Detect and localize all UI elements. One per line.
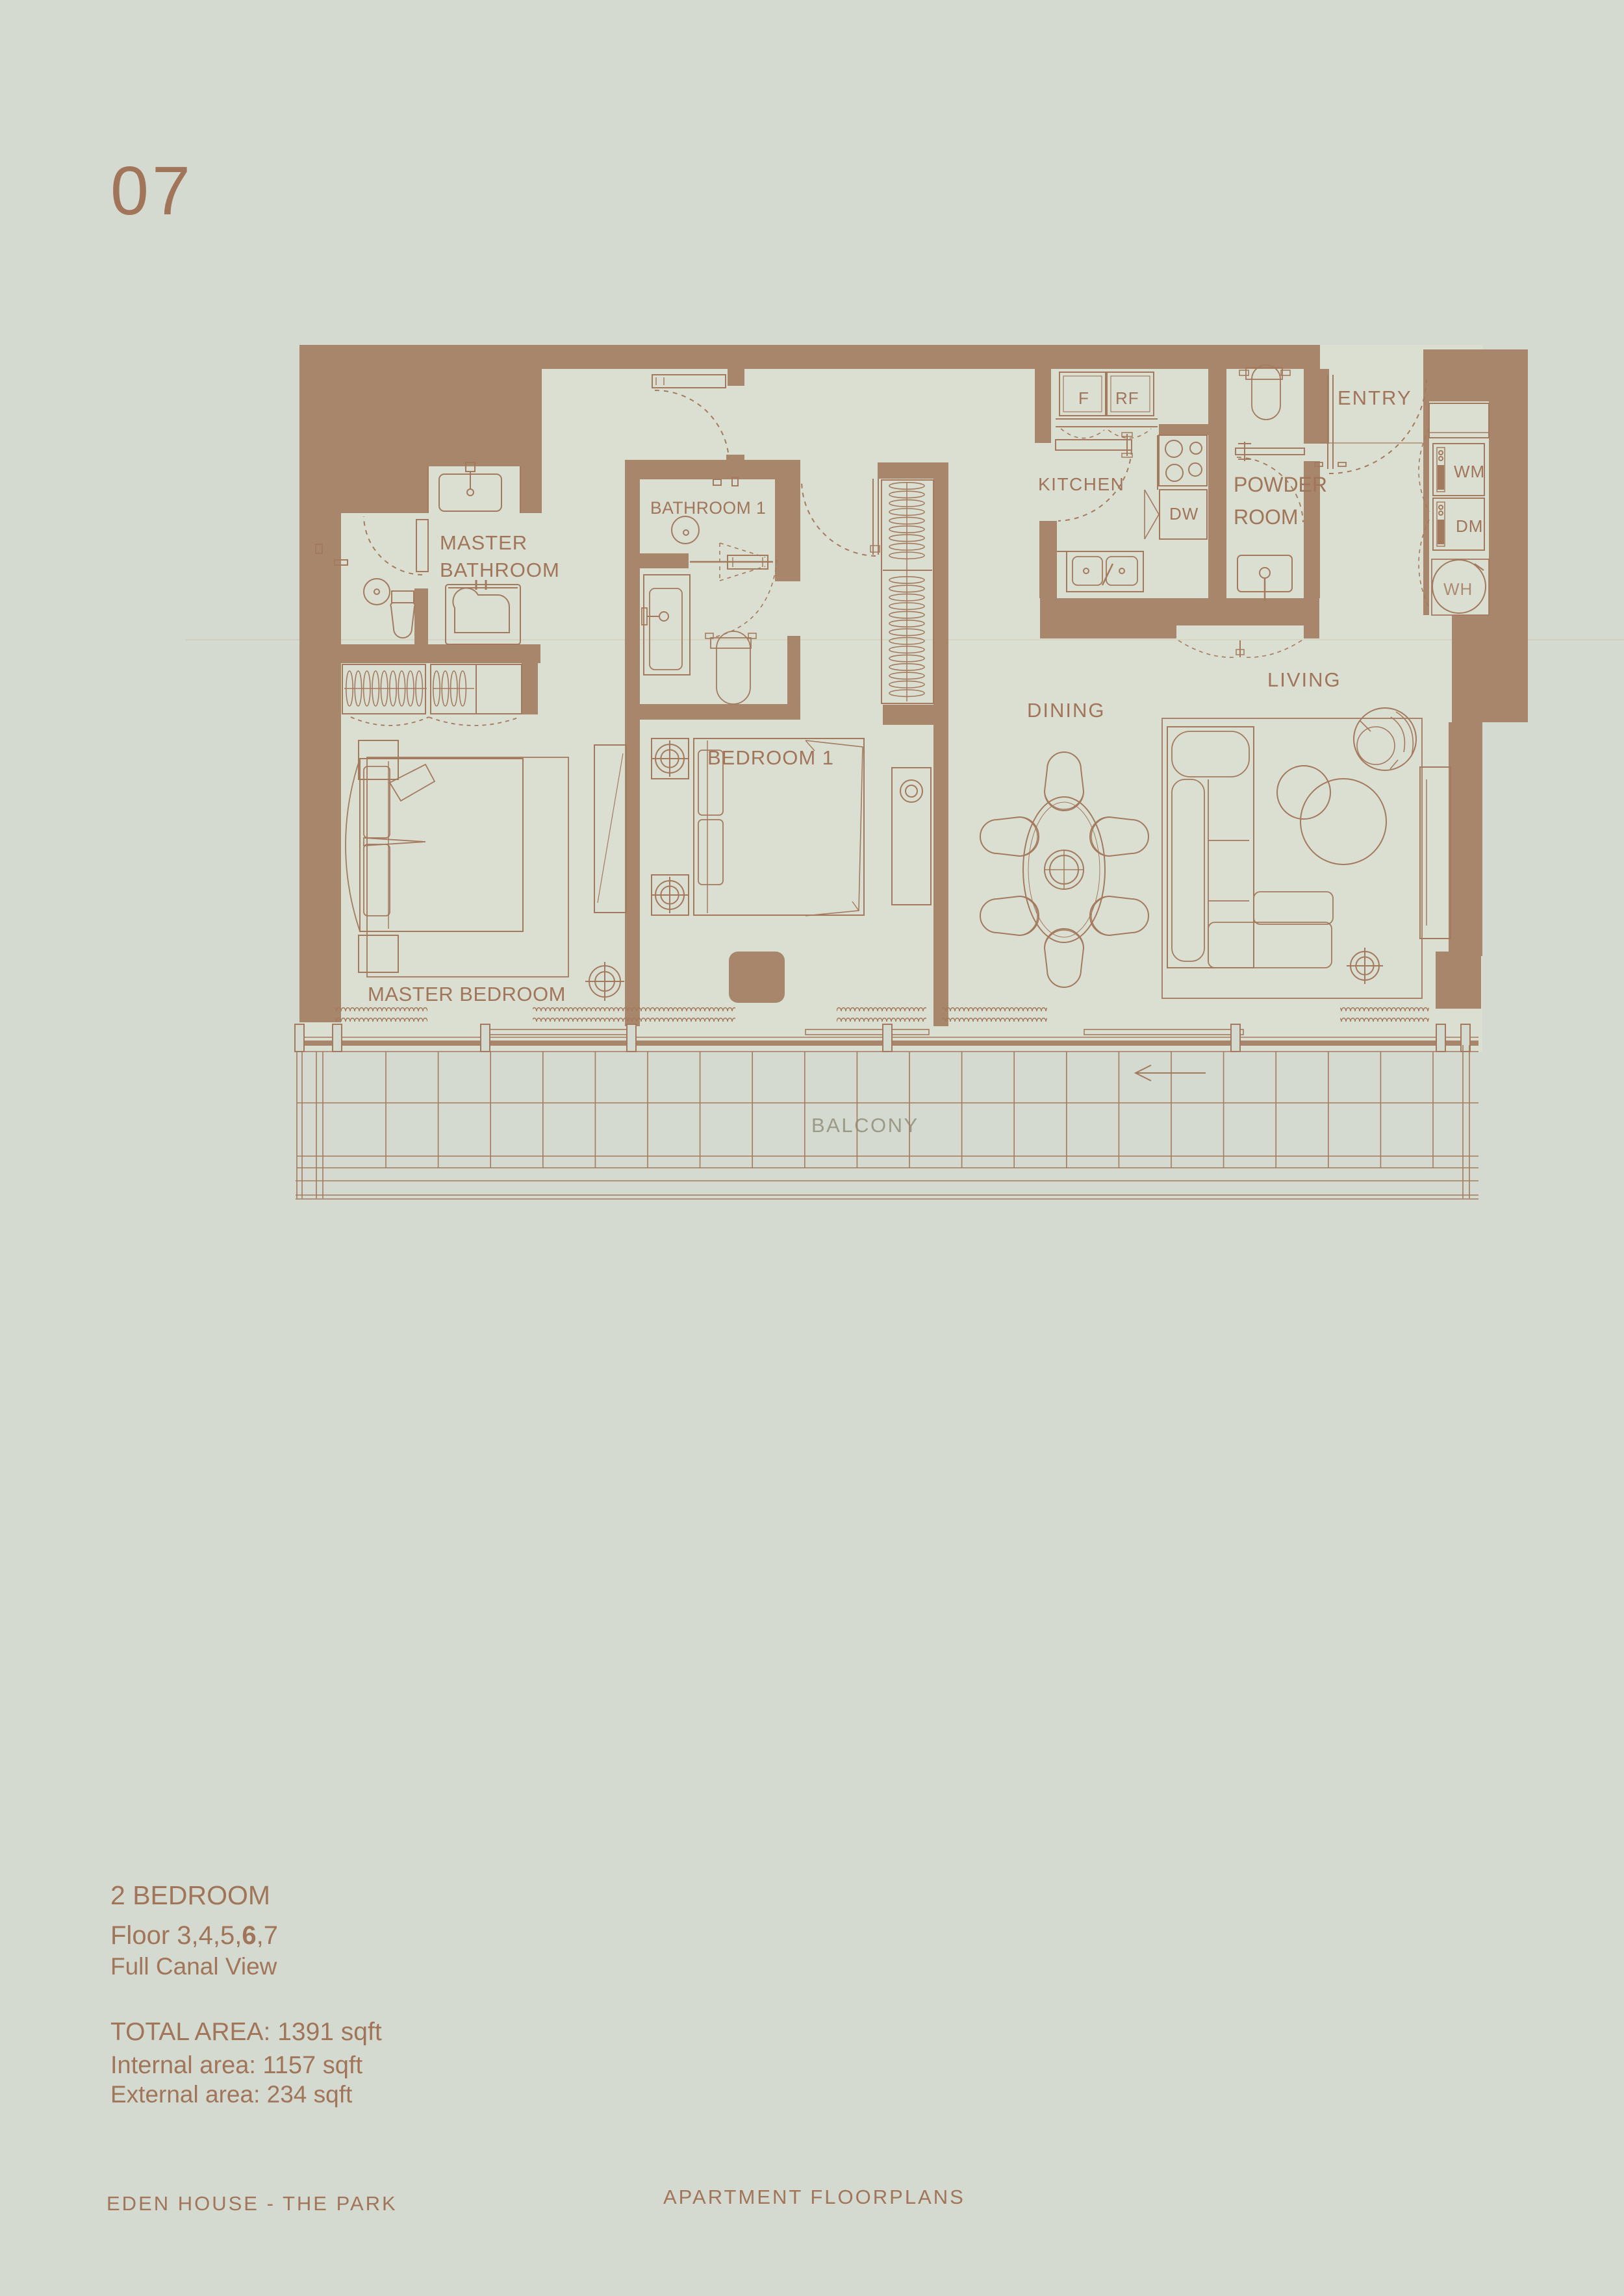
- svg-text:External area: 234 sqft: External area: 234 sqft: [110, 2081, 353, 2108]
- svg-text:BATHROOM 1: BATHROOM 1: [650, 498, 766, 518]
- svg-text:TOTAL AREA: 1391 sqft: TOTAL AREA: 1391 sqft: [110, 2018, 382, 2046]
- svg-text:MASTER BEDROOM: MASTER BEDROOM: [368, 983, 566, 1005]
- svg-text:LIVING: LIVING: [1267, 668, 1341, 691]
- svg-text:2 BEDROOM: 2 BEDROOM: [110, 1880, 270, 1910]
- svg-text:DINING: DINING: [1027, 699, 1106, 722]
- svg-text:BATHROOM: BATHROOM: [440, 559, 560, 581]
- svg-text:Floor 3,4,5,6,7: Floor 3,4,5,6,7: [110, 1921, 278, 1950]
- svg-text:BEDROOM 1: BEDROOM 1: [707, 746, 834, 769]
- svg-text:Internal area: 1157 sqft: Internal area: 1157 sqft: [110, 2052, 362, 2079]
- svg-text:MASTER: MASTER: [440, 531, 527, 554]
- svg-text:BALCONY: BALCONY: [811, 1114, 919, 1137]
- svg-text:KITCHEN: KITCHEN: [1038, 474, 1124, 494]
- svg-text:DW: DW: [1169, 504, 1199, 524]
- svg-text:ROOM: ROOM: [1234, 505, 1299, 529]
- svg-text:F: F: [1078, 388, 1089, 408]
- svg-text:APARTMENT FLOORPLANS: APARTMENT FLOORPLANS: [663, 2186, 965, 2208]
- svg-text:07: 07: [110, 153, 194, 229]
- svg-text:WM: WM: [1454, 462, 1485, 481]
- svg-text:EDEN HOUSE - THE PARK: EDEN HOUSE - THE PARK: [107, 2192, 398, 2215]
- svg-text:ENTRY: ENTRY: [1338, 386, 1412, 409]
- svg-text:POWDER: POWDER: [1234, 473, 1327, 496]
- svg-text:RF: RF: [1115, 388, 1139, 408]
- svg-text:Full Canal View: Full Canal View: [110, 1953, 277, 1980]
- svg-text:WH: WH: [1443, 579, 1473, 599]
- svg-text:DM: DM: [1456, 516, 1483, 536]
